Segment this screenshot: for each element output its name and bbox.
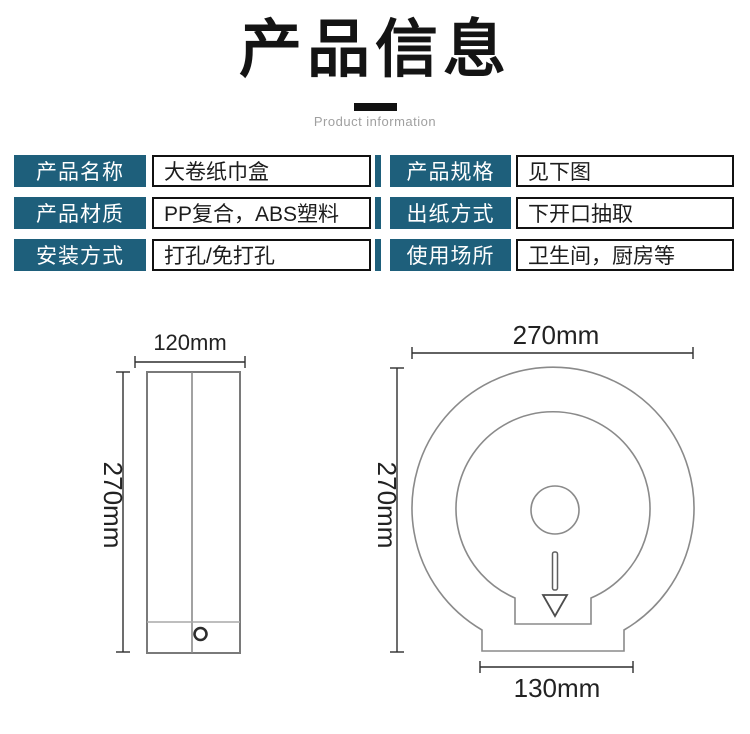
front-view-base-label: 130mm bbox=[514, 673, 601, 703]
down-arrow-icon bbox=[543, 595, 567, 616]
front-view-width-label: 270mm bbox=[513, 320, 600, 350]
product-info-page: 产品信息 Product information 产品名称 大卷纸巾盒 产品材质… bbox=[0, 0, 750, 734]
front-view-paper-slot bbox=[553, 552, 558, 590]
dimension-diagrams: 120mm 270mm 270mm bbox=[0, 0, 750, 734]
front-view-diagram: 270mm 270mm 130mm bbox=[372, 320, 694, 703]
side-view-width-label: 120mm bbox=[153, 330, 226, 355]
side-view-body bbox=[147, 372, 240, 653]
front-view-height-label: 270mm bbox=[372, 462, 402, 549]
side-view-diagram: 120mm 270mm bbox=[98, 330, 245, 653]
front-view-window bbox=[531, 486, 579, 534]
side-view-height-label: 270mm bbox=[98, 462, 128, 549]
front-view-inner-cover bbox=[456, 412, 650, 624]
side-view-lock-hole bbox=[195, 628, 207, 640]
